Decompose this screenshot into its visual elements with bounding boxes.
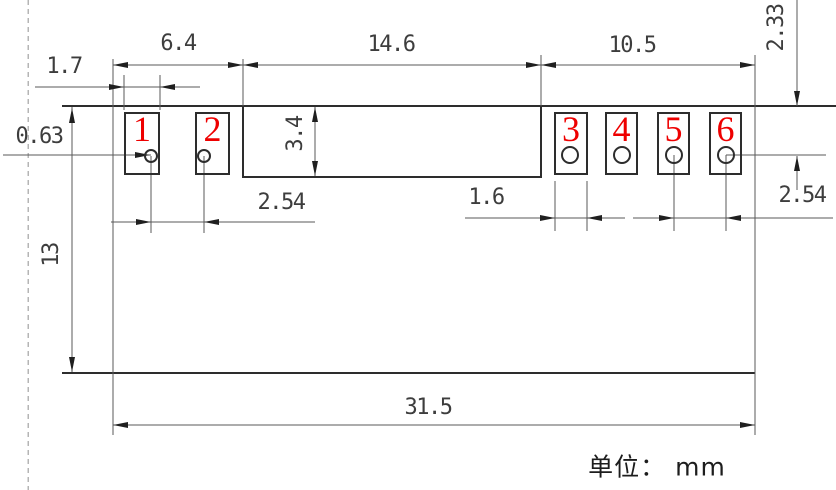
pad-3-number: 3 xyxy=(556,111,586,147)
pad-6-number: 6 xyxy=(711,111,740,147)
pad-3: 3 xyxy=(554,112,588,175)
dim-left-pad-width: 1.7 xyxy=(46,56,81,78)
dim-left-pitch: 2.54 xyxy=(258,192,305,214)
dim-body-height: 3.4 xyxy=(285,116,307,151)
dim-right-group-width: 10.5 xyxy=(609,35,656,57)
pad-2-number: 2 xyxy=(197,111,228,147)
pad-5: 5 xyxy=(657,112,690,175)
dim-overall-width: 31.5 xyxy=(405,397,452,419)
pad-1-hole xyxy=(144,149,158,163)
pad-1: 1 xyxy=(124,112,160,175)
pad-6: 6 xyxy=(709,112,742,175)
dim-body-width: 14.6 xyxy=(368,34,415,56)
pad-4: 4 xyxy=(605,112,638,175)
pad-6-hole xyxy=(717,146,735,164)
pad-5-hole xyxy=(665,146,683,164)
pad-5-number: 5 xyxy=(659,111,688,147)
dim-right-pad-width: 1.6 xyxy=(468,187,503,209)
dimension-drawing: 1 2 3 4 5 6 1.7 6.4 14.6 10.5 2.33 0.63 … xyxy=(0,0,836,490)
pad-2-hole xyxy=(197,149,211,163)
unit-note: 单位： mm xyxy=(588,455,726,480)
dim-hole-diameter: 0.63 xyxy=(16,126,63,148)
pad-4-number: 4 xyxy=(607,111,636,147)
dim-top-clearance: 2.33 xyxy=(766,5,788,52)
pad-3-hole xyxy=(561,146,579,164)
pad-1-number: 1 xyxy=(126,111,158,147)
pad-4-hole xyxy=(613,146,631,164)
dim-right-pitch: 2.54 xyxy=(779,185,826,207)
dim-left-group-width: 6.4 xyxy=(160,33,195,55)
pad-2: 2 xyxy=(195,112,230,175)
dim-board-height: 13 xyxy=(41,243,63,267)
